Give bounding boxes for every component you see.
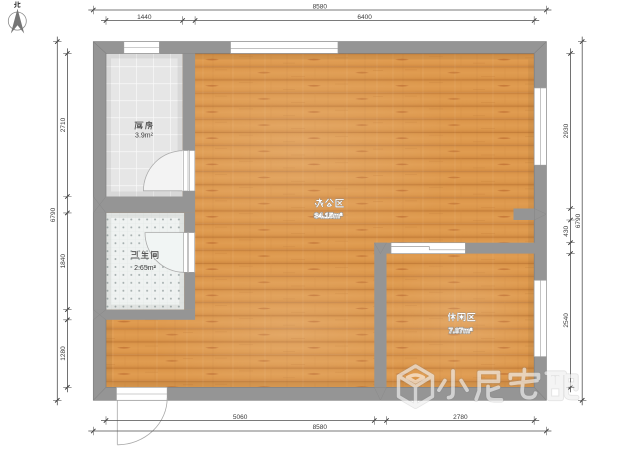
svg-text:2780: 2780 xyxy=(453,414,468,421)
svg-text:2710: 2710 xyxy=(60,117,67,132)
svg-text:1280: 1280 xyxy=(60,346,67,361)
svg-text:1840: 1840 xyxy=(60,254,67,269)
svg-text:6790: 6790 xyxy=(50,207,57,222)
svg-text:2540: 2540 xyxy=(563,313,570,328)
svg-text:5060: 5060 xyxy=(233,414,248,421)
svg-text:8580: 8580 xyxy=(313,4,328,11)
svg-text:2930: 2930 xyxy=(563,123,570,138)
svg-text:34.15m²: 34.15m² xyxy=(314,211,342,220)
svg-text:7.07m²: 7.07m² xyxy=(449,326,473,335)
svg-text:6400: 6400 xyxy=(357,14,372,21)
svg-text:6790: 6790 xyxy=(575,213,582,228)
svg-text:1440: 1440 xyxy=(137,14,152,21)
svg-text:430: 430 xyxy=(563,225,570,236)
svg-text:2.65m²: 2.65m² xyxy=(134,265,156,272)
svg-text:3.9m²: 3.9m² xyxy=(135,133,154,140)
svg-text:8580: 8580 xyxy=(313,424,328,431)
